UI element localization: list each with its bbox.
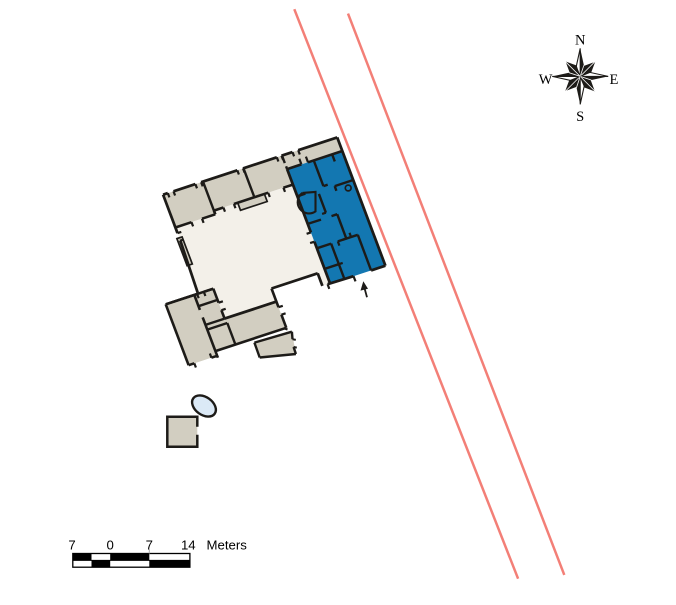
svg-text:W: W	[539, 72, 553, 88]
svg-text:7: 7	[146, 538, 153, 553]
svg-text:14: 14	[181, 538, 196, 553]
svg-text:E: E	[609, 72, 618, 88]
svg-text:0: 0	[107, 538, 114, 553]
svg-text:7: 7	[68, 538, 75, 553]
svg-text:N: N	[575, 32, 586, 48]
svg-text:Meters: Meters	[207, 538, 248, 553]
svg-text:S: S	[576, 109, 584, 125]
